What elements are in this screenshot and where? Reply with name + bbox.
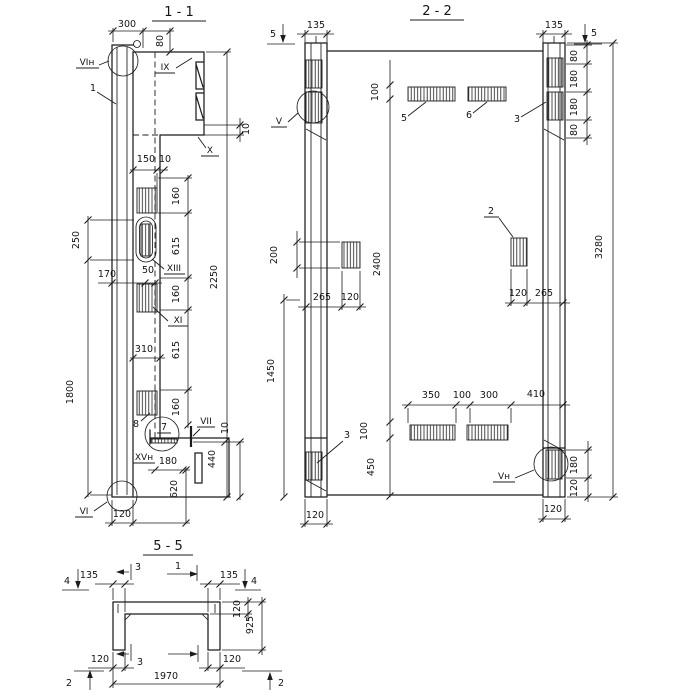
label-vi-bottom: VI xyxy=(80,507,89,517)
cut-mark-5-left: 5 xyxy=(270,29,276,40)
label-x: X xyxy=(207,146,213,156)
dim-200: 200 xyxy=(269,246,280,264)
dim-120-col-right: 120 xyxy=(544,504,562,515)
cut-mark-3-top: 3 xyxy=(135,562,141,573)
dim-615a: 615 xyxy=(171,237,182,255)
block-left xyxy=(342,242,360,268)
dim-120-midleft: 120 xyxy=(341,292,359,303)
section-title-5-5: 5 - 5 xyxy=(153,539,183,554)
dim-150: 150 xyxy=(137,154,155,165)
dim-3280: 3280 xyxy=(594,235,605,259)
dim-925: 925 xyxy=(245,616,256,634)
dimension-ticks xyxy=(281,31,617,528)
dim-120-corner: 120 xyxy=(569,479,580,497)
dim-80: 80 xyxy=(155,35,166,47)
flange-mesh xyxy=(306,92,322,123)
flange-mesh xyxy=(547,92,563,120)
dim-1970: 1970 xyxy=(154,671,178,682)
label-vn: Vн xyxy=(498,472,510,482)
dim-250: 250 xyxy=(71,231,82,249)
dim-410: 410 xyxy=(527,389,545,400)
mesh-bar xyxy=(137,391,157,415)
flange-inner-lines xyxy=(117,47,127,495)
dim-1450: 1450 xyxy=(266,359,277,383)
drawing-canvas: 1 - 1 300 80 150 10 10 250 1800 170 50 3… xyxy=(0,0,700,700)
dim-100-chain: 100 xyxy=(453,390,471,401)
dim-120-col-left: 120 xyxy=(306,510,324,521)
dim-160a: 160 xyxy=(171,187,182,205)
dim-120-midright: 120 xyxy=(509,288,527,299)
cut-mark-2-left: 2 xyxy=(66,678,72,689)
dim-615b: 615 xyxy=(171,341,182,359)
label-xiii: XIII xyxy=(167,264,181,274)
dim-10-step: 10 xyxy=(241,123,252,135)
dim-265-midleft: 265 xyxy=(313,292,331,303)
section-5-5-view: 5 - 5 4 135 3 1 135 4 120 925 120 3 120 … xyxy=(62,539,284,690)
dim-265-midright: 265 xyxy=(535,288,553,299)
label-item-3-top: 3 xyxy=(514,114,520,125)
dim-10-inner: 10 xyxy=(159,154,171,165)
dim-310: 310 xyxy=(135,344,153,355)
channel-outline xyxy=(113,602,220,650)
dim-170: 170 xyxy=(98,269,116,280)
dim-80a: 80 xyxy=(569,50,580,62)
section-1-1-view: 1 - 1 300 80 150 10 10 250 1800 170 50 3… xyxy=(65,5,252,527)
dim-80b: 80 xyxy=(569,124,580,136)
cut-mark-4-left: 4 xyxy=(64,576,70,587)
mesh-bar xyxy=(137,188,157,213)
label-item-7: 7 xyxy=(161,422,167,433)
dim-120-bottom-left: 120 xyxy=(91,654,109,665)
detail7-strip xyxy=(151,439,177,443)
dim-620: 620 xyxy=(169,480,180,498)
dim-300: 300 xyxy=(118,19,136,30)
bar-bottom xyxy=(410,425,455,440)
dim-350: 350 xyxy=(422,390,440,401)
bar-bottom xyxy=(467,425,508,440)
dim-120-bottom-right: 120 xyxy=(223,654,241,665)
cut-mark-4-right: 4 xyxy=(251,576,257,587)
dim-120-bottom: 120 xyxy=(113,509,131,520)
dim-100-bottom: 100 xyxy=(359,422,370,440)
loop-core xyxy=(141,224,150,256)
cut-mark-3-bottom: 3 xyxy=(137,657,143,668)
dimension-ticks xyxy=(110,581,266,688)
haunches-and-bars xyxy=(118,604,215,620)
dim-120-web: 120 xyxy=(232,600,243,618)
label-item-8: 8 xyxy=(133,419,139,430)
label-vi-top: VIн xyxy=(80,58,95,68)
cut-arrowheads xyxy=(280,35,588,43)
flange-mesh xyxy=(306,60,322,88)
dim-10-foot: 10 xyxy=(220,422,231,434)
bar-item-5 xyxy=(408,87,455,101)
dim-300-chain: 300 xyxy=(480,390,498,401)
dim-1800: 1800 xyxy=(65,380,76,404)
dim-180-foot: 180 xyxy=(159,456,177,467)
label-item-2: 2 xyxy=(488,206,494,217)
flange-mesh-bottom xyxy=(546,450,562,479)
label-v: V xyxy=(276,117,283,127)
label-item-5: 5 xyxy=(401,113,407,124)
label-item-3-bottom: 3 xyxy=(344,430,350,441)
block-item-2 xyxy=(511,238,527,266)
flange-mesh-bottom xyxy=(306,452,322,480)
dim-180a: 180 xyxy=(569,70,580,88)
section-2-2-view: 2 - 2 135 135 5 5 80 180 180 80 3280 100… xyxy=(266,4,618,528)
dim-135-left: 135 xyxy=(80,570,98,581)
flange-mesh xyxy=(547,58,563,87)
dim-160c: 160 xyxy=(171,398,182,416)
section-title-2-2: 2 - 2 xyxy=(422,4,452,19)
cut-mark-2-right: 2 xyxy=(278,678,284,689)
label-vii: VII xyxy=(200,417,211,427)
label-xv: XVн xyxy=(135,453,153,463)
dim-135-left: 135 xyxy=(307,20,325,31)
label-xi: XI xyxy=(174,316,183,326)
label-ix: IX xyxy=(161,63,170,73)
dim-135-right: 135 xyxy=(220,570,238,581)
dim-450: 450 xyxy=(366,458,377,476)
dim-135-right: 135 xyxy=(545,20,563,31)
dim-160b: 160 xyxy=(171,285,182,303)
section-title-1-1: 1 - 1 xyxy=(164,5,194,20)
dim-2400: 2400 xyxy=(372,252,383,276)
cut-mark-1-top: 1 xyxy=(175,561,181,572)
bar-item-6 xyxy=(468,87,506,101)
dim-2250: 2250 xyxy=(209,265,220,289)
label-item-1: 1 xyxy=(90,83,96,94)
dim-50: 50 xyxy=(142,265,154,276)
lifting-hook xyxy=(134,41,141,48)
dim-180b: 180 xyxy=(569,98,580,116)
dim-180-corner: 180 xyxy=(569,456,580,474)
cut-mark-5-right: 5 xyxy=(591,28,597,39)
label-item-6: 6 xyxy=(466,110,472,121)
dim-100-top: 100 xyxy=(370,83,381,101)
engineering-drawing: 1 - 1 300 80 150 10 10 250 1800 170 50 3… xyxy=(0,0,700,700)
dim-440: 440 xyxy=(207,450,218,468)
